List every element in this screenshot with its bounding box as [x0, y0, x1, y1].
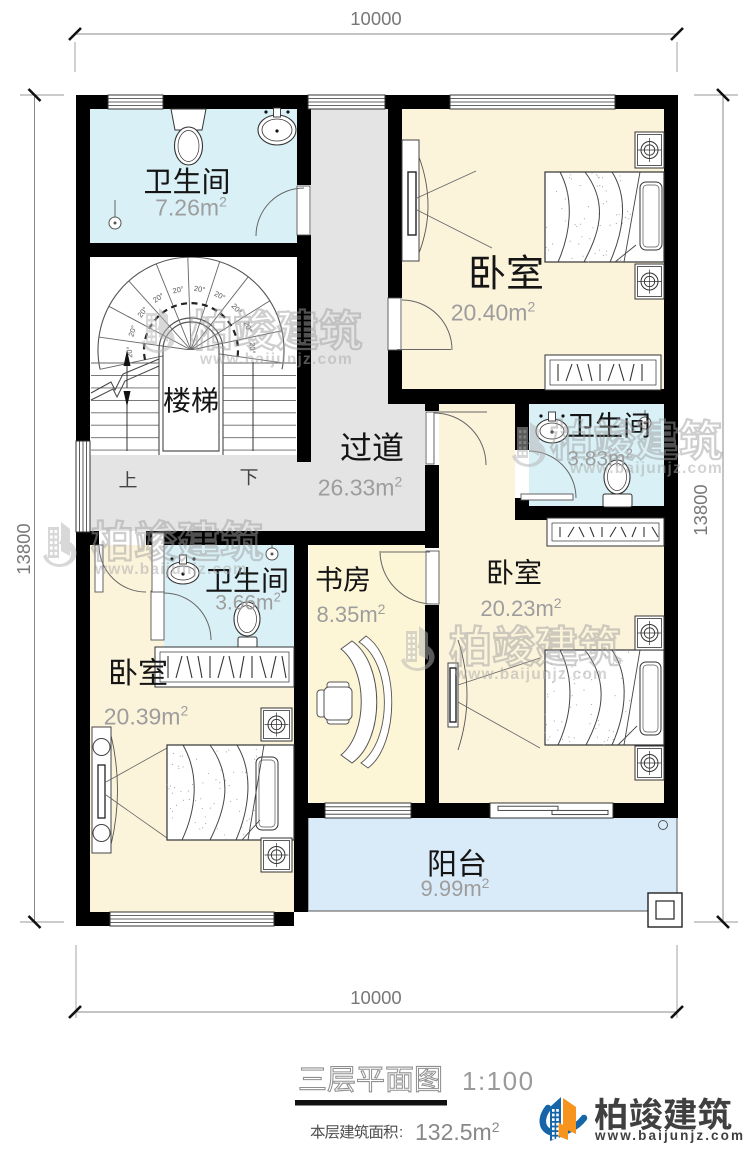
svg-text:www.baijunjz.com: www.baijunjz.com	[569, 460, 723, 477]
svg-text:www.baijunjz.com: www.baijunjz.com	[199, 351, 353, 368]
svg-text:1:100: 1:100	[462, 1066, 535, 1096]
svg-text:7.26m2: 7.26m2	[155, 193, 227, 220]
svg-text:20.40m2: 20.40m2	[451, 298, 536, 325]
svg-text:132.5m2: 132.5m2	[415, 1119, 500, 1145]
svg-text:13800: 13800	[13, 523, 34, 574]
svg-text:www.baijunjz.com: www.baijunjz.com	[454, 666, 608, 683]
svg-text:26.33m2: 26.33m2	[318, 473, 403, 500]
svg-text:3.66m2: 3.66m2	[215, 590, 281, 615]
svg-text:10000: 10000	[350, 8, 401, 29]
svg-text:8.35m2: 8.35m2	[317, 601, 386, 627]
svg-text:10000: 10000	[350, 987, 401, 1008]
svg-text:www.baijunjz.com: www.baijunjz.com	[594, 1128, 745, 1143]
svg-text::: :	[399, 1124, 403, 1141]
svg-text:13800: 13800	[690, 484, 711, 535]
svg-text:20.23m2: 20.23m2	[480, 595, 561, 621]
svg-text:www.baijunjz.com: www.baijunjz.com	[94, 561, 248, 578]
svg-text:20°: 20°	[193, 284, 205, 294]
svg-text:20.39m2: 20.39m2	[104, 702, 189, 729]
svg-text:9.99m2: 9.99m2	[421, 875, 490, 901]
